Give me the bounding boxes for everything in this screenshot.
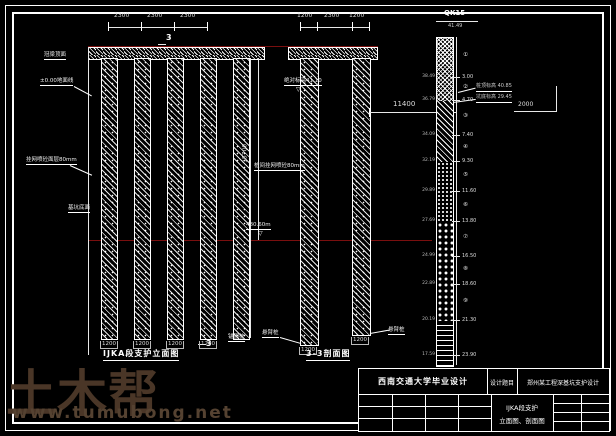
vertical-dim-line (250, 58, 251, 338)
soil-layer-siltyclay-hatch (437, 321, 453, 366)
pile-width-dim: 1200 (166, 341, 184, 349)
dim-line (108, 27, 208, 28)
borehole-name: QK15 (444, 10, 465, 18)
pile-width-dim: 1200 (351, 337, 369, 345)
pile-hatch (101, 58, 118, 340)
design-topic-label: 设计题目 (487, 378, 517, 387)
pit-bottom-elev-label: 480.60m (246, 222, 271, 230)
layer-depth-label: 23.90 (462, 352, 476, 358)
layer-depth-label: 9.30 (462, 158, 473, 164)
title-block-line (392, 394, 393, 431)
layer-depth-label: 18.60 (462, 281, 476, 287)
watermark-site: www.tumubong.net (12, 403, 233, 423)
dim-tick (141, 22, 142, 31)
shotcrete-label: 挂网喷砼面层80mm (26, 157, 77, 165)
section-cut-tick (158, 44, 166, 45)
dim-label: 2300 (114, 13, 129, 20)
layer-tick (452, 320, 460, 321)
dim-tick (369, 22, 370, 31)
level-triangle-icon: ▽ (296, 86, 301, 93)
layer-tick (452, 355, 460, 356)
layer-id: ⑤ (463, 172, 468, 178)
pile-hatch (167, 58, 184, 340)
dim-tick (108, 22, 109, 31)
pile-width-dim: 1200 (199, 341, 217, 349)
layer-tick (452, 77, 460, 78)
university-title: 西南交通大学毕业设计 (359, 376, 487, 387)
pile-width-dim: 1200 (100, 341, 118, 349)
soil-layer-silt-hatch (437, 162, 453, 222)
datum-note: 绝对标高41.10 (284, 78, 322, 86)
anchor-pile-label: 锚固桩 (228, 334, 245, 342)
layer-depth-label: 16.50 (462, 253, 476, 259)
layer-elev-label: 22.89 (419, 281, 435, 286)
title-block-line (553, 421, 609, 422)
title-block-line (491, 394, 492, 431)
layer-elev-label: 24.99 (419, 253, 435, 258)
title-block-line (359, 394, 609, 395)
dim-label: 2300 (147, 13, 162, 20)
offset-dim-label: 2000 (518, 102, 533, 109)
layer-tick (452, 135, 460, 136)
layer-depth-label: 7.40 (462, 132, 473, 138)
title-block-line (425, 394, 426, 431)
leader-note: 桩顶标高 40.85 (476, 84, 512, 92)
pile-hatch (134, 58, 151, 340)
borehole-depth-scale-line (456, 37, 457, 365)
dim-label: 1200 (297, 13, 312, 20)
dim-line (514, 111, 556, 112)
pile-width-dim: 1200 (133, 341, 151, 349)
section-pile-hatch (300, 58, 319, 346)
dim-tick (317, 22, 318, 31)
cantilever-pile-label: 悬臂桩 (388, 327, 405, 335)
total-height-dim-label: 15700 (242, 144, 249, 163)
layer-elev-label: 17.59 (419, 352, 435, 357)
soil-layer-gravel-hatch (437, 222, 453, 321)
layer-tick (452, 221, 460, 222)
dim-tick (174, 22, 175, 31)
project-title: 郑州某工程深基坑支护设计 (517, 378, 609, 387)
dim-label: 2300 (324, 13, 339, 20)
layer-depth-label: 11.60 (462, 188, 476, 194)
pit-bottom-label: 基坑底面 (68, 205, 90, 213)
layer-id: ⑦ (463, 234, 468, 240)
layer-id: ③ (463, 113, 468, 119)
layer-elev-label: 20.19 (419, 317, 435, 322)
dim-line (300, 27, 369, 28)
section-pile-hatch (352, 58, 371, 336)
layer-id: ② (463, 84, 468, 90)
layer-elev-label: 34.09 (419, 132, 435, 137)
level-triangle-icon: ▽ (258, 230, 263, 237)
section-cut-number: 3 (166, 34, 172, 43)
dim-tick (207, 22, 208, 31)
pile-hatch (200, 58, 217, 340)
layer-id: ⑥ (463, 202, 468, 208)
dim-label: 2300 (180, 13, 195, 20)
soil-layer-fill-hatch (437, 38, 453, 101)
sheet-title-line2: 立面图、剖面图 (491, 415, 553, 425)
layer-elev-label: 32.19 (419, 158, 435, 163)
sheet-title-line1: IJKA段支护 (491, 402, 553, 412)
dim-tick (300, 22, 301, 31)
borehole-offset-dim-label: 11400 (393, 101, 415, 109)
dim-label: 1200 (349, 13, 364, 20)
layer-tick (452, 100, 460, 101)
layer-elev-label: 36.79 (419, 97, 435, 102)
dim-tick (352, 22, 353, 31)
layer-depth-label: 4.70 (462, 97, 473, 103)
crown-beam-label: 冠梁顶面 (44, 52, 66, 60)
dim-tick (369, 108, 370, 117)
title-block-line (553, 403, 609, 404)
layer-id: ⑧ (463, 266, 468, 272)
dim-line (556, 86, 557, 112)
layer-elev-label: 38.49 (419, 74, 435, 79)
layer-tick (452, 284, 460, 285)
layer-depth-label: 13.80 (462, 218, 476, 224)
title-block-line (458, 394, 459, 431)
layer-depth-label: 21.30 (462, 317, 476, 323)
layer-id: ④ (463, 144, 468, 150)
pile-mesh-note: 桩间挂网喷砼80mm (254, 163, 305, 171)
layer-id: ① (463, 52, 468, 58)
title-block-line (553, 412, 609, 413)
borehole-name-underline (436, 21, 478, 22)
layer-tick (452, 191, 460, 192)
cantilever-pile-label: 悬臂桩 (262, 330, 279, 338)
title-block: 西南交通大学毕业设计 设计题目 郑州某工程深基坑支护设计 IJKA段支护 立面图… (358, 368, 610, 432)
layer-elev-label: 27.69 (419, 218, 435, 223)
cad-sheet: 土木帮 www.tumubong.net 2300 2300 2300 3 3 … (0, 0, 616, 436)
layer-elev-label: 29.89 (419, 188, 435, 193)
ground-line-label: ±0.00地面线 (40, 78, 73, 86)
borehole-ground-elevation: 41.49 (448, 24, 462, 30)
layer-depth-label: 3.00 (462, 74, 473, 80)
vertical-dim-line (258, 58, 259, 240)
pile-hatch (233, 58, 250, 340)
layer-id: ⑨ (463, 298, 468, 304)
elevation-caption: IJKA段支护立面图 (103, 350, 179, 361)
borehole-column (436, 37, 454, 367)
leader-note: 坑底标高 29.45 (476, 95, 512, 103)
layer-tick (452, 256, 460, 257)
section-caption: 3-3剖面图 (306, 350, 350, 361)
layer-tick (452, 161, 460, 162)
soil-layer-clay-hatch (437, 101, 453, 162)
